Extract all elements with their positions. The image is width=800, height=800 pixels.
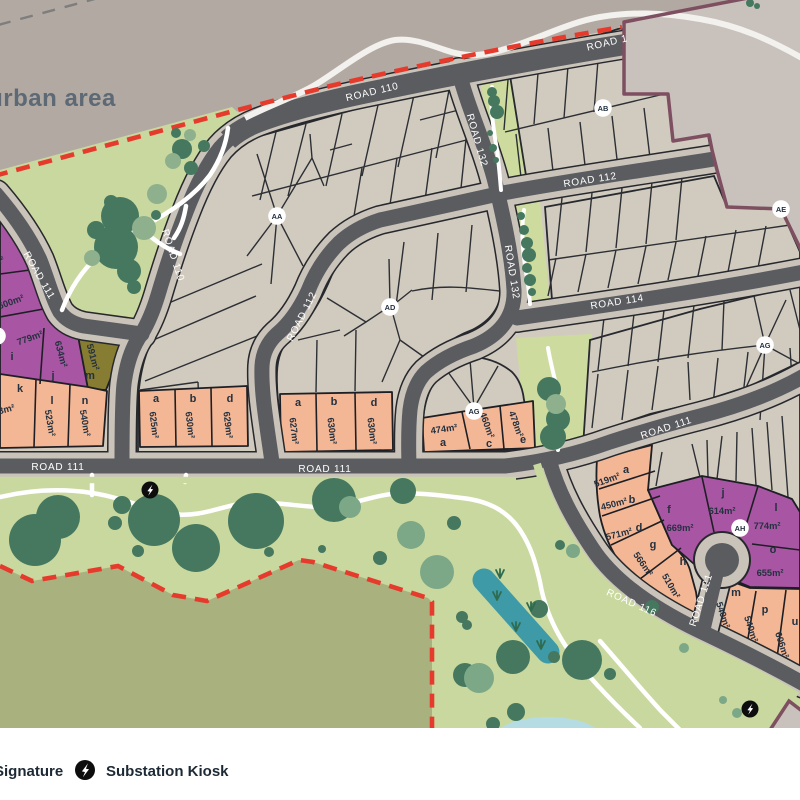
svg-text:AE: AE bbox=[776, 205, 786, 214]
svg-text:669m²: 669m² bbox=[667, 523, 694, 533]
svg-text:m: m bbox=[85, 370, 95, 382]
svg-text:AG: AG bbox=[468, 407, 479, 416]
svg-text:k: k bbox=[17, 383, 24, 395]
svg-text:a: a bbox=[153, 393, 160, 405]
svg-text:AG: AG bbox=[759, 341, 770, 350]
svg-text:ROAD 111: ROAD 111 bbox=[31, 462, 84, 473]
svg-text:d: d bbox=[636, 522, 643, 534]
svg-text:h: h bbox=[680, 556, 687, 568]
svg-text:a: a bbox=[295, 397, 302, 409]
svg-text:j: j bbox=[50, 370, 54, 382]
svg-text:b: b bbox=[331, 396, 338, 408]
svg-text:i: i bbox=[10, 351, 13, 363]
svg-text:614m²: 614m² bbox=[709, 506, 736, 516]
svg-text:g: g bbox=[650, 539, 657, 551]
svg-text:d: d bbox=[227, 393, 234, 405]
svg-text:AB: AB bbox=[598, 104, 609, 113]
svg-text:774m²: 774m² bbox=[754, 521, 781, 531]
svg-text:e: e bbox=[520, 434, 526, 446]
svg-text:m: m bbox=[731, 587, 741, 599]
svg-text:Signature: Signature bbox=[0, 763, 63, 780]
svg-text:j: j bbox=[720, 487, 724, 499]
svg-text:Substation Kiosk: Substation Kiosk bbox=[106, 763, 229, 780]
svg-text:AH: AH bbox=[735, 524, 746, 533]
svg-text:c: c bbox=[486, 438, 492, 450]
svg-text:n: n bbox=[82, 395, 89, 407]
svg-text:l: l bbox=[774, 502, 777, 514]
svg-text:urban area: urban area bbox=[0, 85, 116, 112]
svg-text:f: f bbox=[667, 504, 671, 516]
svg-text:655m²: 655m² bbox=[757, 568, 784, 578]
svg-text:ROAD 111: ROAD 111 bbox=[298, 464, 351, 475]
svg-text:a: a bbox=[440, 437, 447, 449]
svg-text:l: l bbox=[50, 395, 53, 407]
svg-text:AD: AD bbox=[385, 303, 396, 312]
svg-text:d: d bbox=[371, 397, 378, 409]
svg-text:u: u bbox=[792, 616, 799, 628]
svg-text:a: a bbox=[623, 464, 630, 476]
svg-text:p: p bbox=[762, 604, 769, 616]
svg-text:AA: AA bbox=[272, 212, 283, 221]
svg-text:b: b bbox=[629, 494, 636, 506]
svg-text:o: o bbox=[770, 544, 777, 556]
svg-text:b: b bbox=[190, 393, 197, 405]
